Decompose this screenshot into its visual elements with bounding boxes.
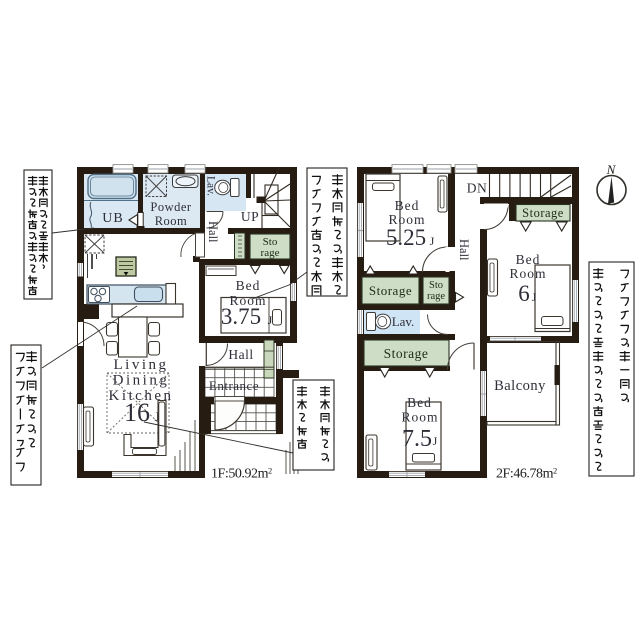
svg-text:3.75: 3.75 <box>221 304 261 329</box>
svg-text:7.5: 7.5 <box>402 426 432 452</box>
svg-text:Storage: Storage <box>369 283 412 298</box>
svg-text:Hall: Hall <box>228 347 253 362</box>
svg-text:Storage: Storage <box>522 206 564 220</box>
svg-text:UP: UP <box>241 209 259 224</box>
svg-text:UB: UB <box>102 211 123 226</box>
svg-text:J: J <box>430 234 435 248</box>
svg-text:Lav.: Lav. <box>205 176 217 196</box>
svg-text:Room: Room <box>401 410 438 425</box>
svg-text:Dining: Dining <box>113 373 170 389</box>
svg-text:Sto: Sto <box>429 280 443 291</box>
svg-text:Bed: Bed <box>395 198 420 213</box>
svg-text:Room: Room <box>155 214 188 228</box>
svg-text:Powder: Powder <box>150 200 192 214</box>
svg-text:Bed: Bed <box>407 395 432 410</box>
svg-text:Lav.: Lav. <box>392 314 415 329</box>
svg-text:J: J <box>532 290 537 304</box>
svg-text:Bed: Bed <box>516 252 541 267</box>
svg-text:J: J <box>433 434 438 448</box>
svg-text:2F:46.78m2: 2F:46.78m2 <box>496 466 557 482</box>
svg-text:Bed: Bed <box>236 278 261 293</box>
svg-text:Room: Room <box>509 266 546 281</box>
svg-text:J: J <box>268 313 273 327</box>
svg-text:5.25: 5.25 <box>386 225 426 250</box>
svg-text:N: N <box>606 162 617 177</box>
svg-text:rage: rage <box>427 291 445 302</box>
svg-text:Balcony: Balcony <box>494 378 546 394</box>
svg-text:6: 6 <box>518 281 530 306</box>
svg-text:1F:50.92m2: 1F:50.92m2 <box>211 466 272 482</box>
svg-text:DN: DN <box>467 181 488 196</box>
svg-text:Hall: Hall <box>206 221 220 243</box>
svg-text:Entrance: Entrance <box>209 378 259 393</box>
svg-text:rage: rage <box>261 247 280 259</box>
svg-text:Hall: Hall <box>457 239 471 261</box>
svg-text:Living: Living <box>114 357 169 373</box>
svg-text:Storage: Storage <box>384 346 429 361</box>
